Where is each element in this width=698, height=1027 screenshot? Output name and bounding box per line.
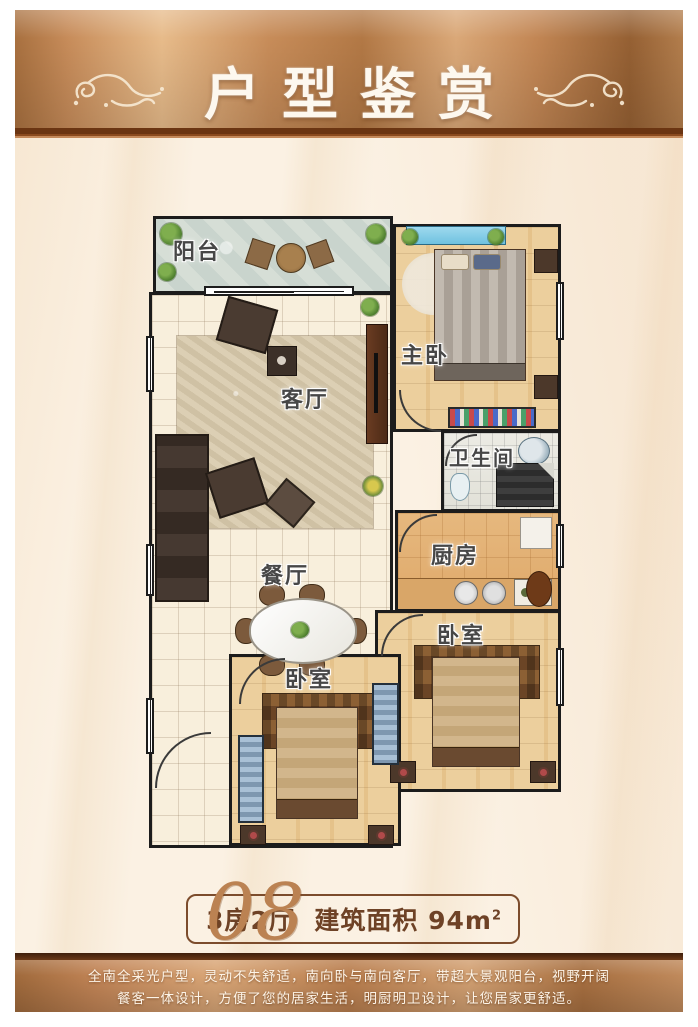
balcony-chair [306,239,335,269]
fridge [520,517,552,549]
nightstand [240,825,266,845]
wardrobe [372,683,399,765]
sofa [155,434,209,602]
flourish-left-icon [72,63,164,119]
window [146,544,154,596]
floor-plan: 阳台 主卧 [149,186,565,866]
window [146,698,154,754]
flourish-right-icon [534,63,626,119]
window [556,648,564,706]
unit-area-value: 94m [428,906,492,935]
bookshelf [448,407,536,428]
poster-page: 户型鉴赏 阳台 [0,0,698,1027]
balcony-sliding-door [204,286,354,296]
page-title: 户型鉴赏 [182,50,516,131]
footer-line-1: 全南全采光户型，灵动不失舒适，南向卧与南向客厅，带超大景观阳台，视野开阔 [88,965,610,985]
footer-line-2: 餐客一体设计，方便了您的居家生活，明厨明卫设计，让您居家更舒适。 [117,987,581,1007]
bedroom-right-label: 卧室 [437,618,485,650]
footer-divider [15,953,683,960]
nightstand [534,375,558,399]
nightstand [368,825,394,845]
side-table [267,346,297,376]
balcony-chair [245,238,276,270]
plant-icon [361,298,379,316]
bathroom-label: 卫生间 [449,442,515,471]
toilet [450,473,470,501]
bed [276,707,358,819]
kitchen-basin [526,571,552,607]
bed [432,657,520,767]
banner-divider [15,128,683,138]
bathroom-sink [518,437,550,465]
unit-area-label: 建筑面积 [314,906,418,935]
plant-icon [488,229,504,245]
master-bedroom-label: 主卧 [401,338,449,370]
unit-area-sup: 2 [492,909,502,924]
balcony-label: 阳台 [173,234,221,266]
unit-number: 08 [190,872,320,954]
living-room-label: 客厅 [281,382,329,414]
wardrobe [238,735,264,823]
title-banner: 户型鉴赏 [15,10,683,138]
kitchen-label: 厨房 [431,538,479,570]
dining-table [249,598,357,664]
plant-icon [402,229,418,245]
window [146,336,154,392]
nightstand [534,249,558,273]
kitchen-sink [454,581,478,605]
nightstand [530,761,556,783]
flower-plant-icon [363,476,383,496]
kitchen-sink [482,581,506,605]
window [556,282,564,340]
dining-room-label: 餐厅 [261,558,309,590]
balcony-table [276,243,306,273]
tv-cabinet [366,324,388,444]
bedroom-left-label: 卧室 [285,662,333,694]
window [556,524,564,568]
plant-icon [366,224,386,244]
footer-banner: 全南全采光户型，灵动不失舒适，南向卧与南向客厅，带超大景观阳台，视野开阔 餐客一… [15,960,683,1012]
